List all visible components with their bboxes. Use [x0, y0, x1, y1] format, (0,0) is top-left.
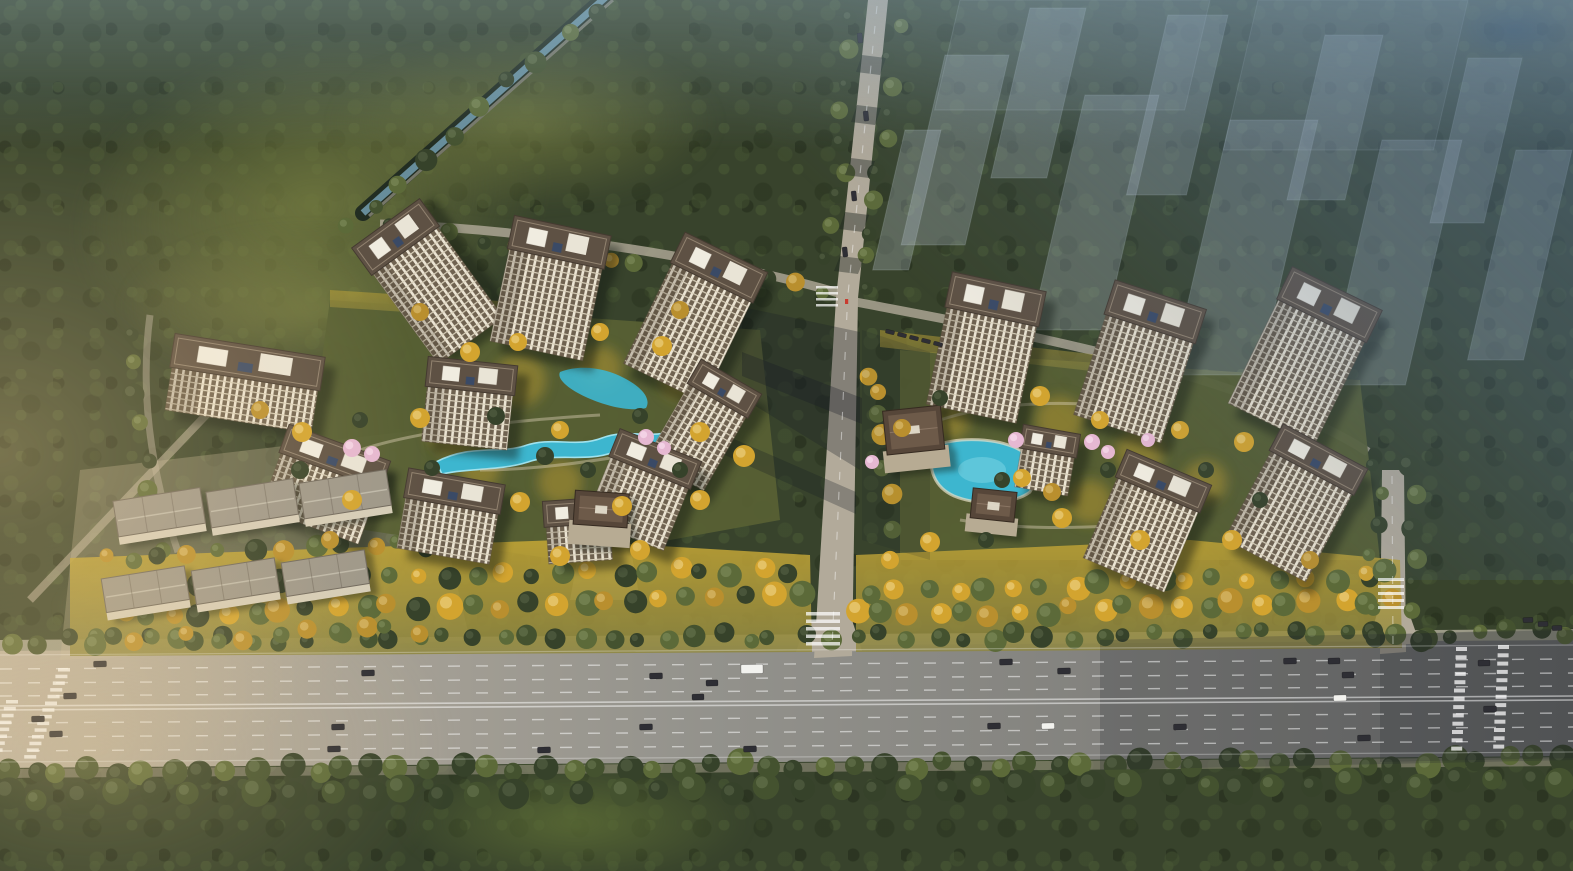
tree-highlight	[1205, 570, 1213, 578]
tree-highlight	[1256, 624, 1263, 631]
vehicle	[842, 247, 848, 257]
tree	[1522, 768, 1545, 791]
tower-building	[488, 215, 611, 361]
tree	[1341, 625, 1356, 640]
tree-highlight	[1122, 575, 1129, 582]
tree-highlight	[693, 565, 700, 572]
tree-highlight	[842, 42, 851, 51]
club-building	[965, 487, 1021, 536]
tree	[213, 568, 237, 592]
vehicle	[93, 661, 106, 667]
tower-building	[395, 468, 506, 565]
tree	[869, 600, 892, 623]
slab-building	[101, 566, 191, 621]
tree-highlight	[1404, 521, 1414, 531]
tree-highlight	[63, 631, 71, 639]
tree-highlight	[310, 574, 318, 582]
tree	[106, 763, 130, 787]
tree	[125, 632, 144, 651]
tree	[358, 595, 382, 619]
tree-highlight	[119, 605, 127, 613]
tree-highlight	[1054, 758, 1063, 767]
tree	[550, 546, 570, 566]
tree-highlight	[144, 455, 151, 462]
tree	[727, 748, 754, 775]
tree	[1091, 411, 1109, 429]
tree	[525, 51, 547, 73]
tree	[882, 51, 895, 64]
tree-highlight	[818, 759, 827, 768]
tree	[1404, 602, 1421, 619]
vehicle	[63, 693, 76, 699]
tree-highlight	[511, 335, 519, 343]
vehicle	[49, 731, 62, 737]
tree-highlight	[501, 632, 508, 639]
tree-highlight	[874, 427, 884, 437]
tree	[45, 763, 65, 783]
tree-highlight	[157, 544, 164, 551]
vehicle	[31, 716, 44, 722]
tree	[625, 254, 643, 272]
tree	[745, 634, 760, 649]
tree	[186, 604, 209, 627]
tree-highlight	[1237, 435, 1246, 444]
tree	[679, 773, 706, 800]
crosswalk-bar	[1497, 662, 1508, 666]
tree-highlight	[471, 569, 479, 577]
tree	[829, 187, 845, 203]
tree	[1120, 573, 1136, 589]
tree	[858, 247, 874, 263]
vehicle	[327, 746, 340, 752]
tree	[279, 781, 308, 810]
tree-highlight	[994, 761, 1002, 769]
tree	[869, 405, 887, 423]
vehicle	[361, 670, 374, 676]
tree-highlight	[236, 633, 245, 642]
tree-highlight	[674, 464, 681, 471]
tree	[717, 563, 741, 587]
tree	[753, 773, 780, 800]
crosswalk-bar	[58, 668, 70, 672]
tree	[516, 625, 537, 646]
tree	[510, 492, 530, 512]
tree-highlight	[979, 608, 989, 618]
tree	[411, 303, 429, 321]
tree-highlight	[384, 220, 390, 226]
vehicle	[741, 664, 763, 673]
crosswalk-bar	[806, 642, 840, 646]
tree-highlight	[639, 564, 648, 573]
tree	[100, 548, 114, 562]
tree-highlight	[243, 578, 250, 585]
tree-highlight	[31, 765, 40, 774]
tree-highlight	[323, 533, 331, 541]
tower-building	[622, 232, 768, 403]
tree-highlight	[1365, 624, 1374, 633]
tree	[1329, 750, 1352, 773]
vehicle	[1552, 625, 1562, 630]
tree-highlight	[1142, 597, 1153, 608]
tree-highlight	[627, 256, 635, 264]
tree-highlight	[882, 132, 890, 140]
tree	[162, 759, 188, 785]
tree-highlight	[30, 638, 39, 647]
gold-grass-patch	[1036, 396, 1084, 444]
accent-trees	[251, 301, 1319, 569]
tree	[167, 627, 189, 649]
tree	[328, 596, 348, 616]
tree	[612, 496, 632, 516]
tree	[870, 624, 887, 641]
tree-highlight	[867, 457, 873, 463]
tree	[956, 633, 970, 647]
tree	[142, 454, 157, 469]
tree-highlight	[1559, 629, 1567, 637]
tree	[122, 383, 144, 405]
tree	[166, 607, 183, 624]
tree-highlight	[1373, 518, 1381, 526]
tree	[321, 531, 339, 549]
tree-highlight	[366, 448, 373, 455]
tree-highlight	[276, 543, 286, 553]
tree	[672, 759, 696, 783]
tree-highlight	[1364, 550, 1370, 556]
tree	[1398, 455, 1420, 477]
tree-highlight	[125, 386, 135, 396]
tree-highlight	[1298, 571, 1306, 579]
tree	[933, 751, 952, 770]
crosswalk-bar	[1455, 664, 1466, 668]
vehicle	[692, 694, 704, 700]
crosswalk-bar	[1454, 697, 1465, 701]
tree-highlight	[874, 757, 886, 769]
tree	[1101, 445, 1115, 459]
tree-highlight	[1005, 624, 1015, 634]
tree	[187, 573, 211, 597]
tree-highlight	[1503, 748, 1512, 757]
tree-highlight	[545, 785, 555, 795]
tree-highlight	[1163, 773, 1175, 785]
tree-highlight	[436, 629, 442, 635]
tree	[414, 631, 429, 646]
tree-highlight	[746, 636, 753, 643]
tree	[1146, 624, 1162, 640]
tree	[322, 780, 345, 803]
tree-highlight	[1015, 754, 1026, 765]
tree	[1410, 630, 1432, 652]
tree	[931, 603, 952, 624]
tree	[437, 593, 464, 620]
tree-highlight	[144, 630, 151, 637]
crosswalk-bar	[32, 735, 44, 739]
tree-highlight	[794, 779, 805, 790]
tree	[789, 581, 815, 607]
tree	[452, 753, 476, 777]
tree-highlight	[954, 585, 962, 593]
crosswalk-bar	[0, 721, 11, 725]
tree-highlight	[284, 756, 295, 767]
tree-highlight	[48, 766, 57, 775]
tree-highlight	[1107, 757, 1117, 767]
tree-highlight	[547, 631, 556, 640]
tree	[137, 609, 154, 626]
tree	[493, 562, 513, 582]
tree-highlight	[275, 629, 282, 636]
crosswalk-bar	[53, 681, 65, 685]
side-road-southwest	[30, 392, 228, 600]
tree	[615, 564, 638, 587]
tree	[445, 127, 464, 146]
west-courtyard-pond	[436, 430, 690, 474]
tree	[504, 763, 522, 781]
tree-highlight	[1290, 624, 1298, 632]
tree	[524, 569, 539, 584]
tree	[251, 401, 269, 419]
tree-highlight	[597, 594, 605, 602]
tree-highlight	[1088, 572, 1099, 583]
tree-highlight	[760, 272, 768, 280]
crosswalk-bar	[1451, 747, 1462, 751]
tree	[863, 779, 886, 802]
tree-highlight	[212, 545, 218, 551]
tree	[733, 445, 755, 467]
tree	[920, 532, 940, 552]
tree	[308, 572, 325, 589]
west-courtyard-pool	[559, 368, 647, 410]
tree-highlight	[627, 593, 637, 603]
tower-building	[1223, 424, 1368, 583]
tree-highlight	[849, 602, 860, 613]
ghost-tower	[1430, 58, 1522, 223]
tree-highlight	[331, 625, 340, 634]
tree-highlight	[391, 537, 397, 543]
tree	[964, 756, 982, 774]
tree-highlight	[1117, 630, 1123, 636]
tree	[883, 77, 902, 96]
tree-highlight	[1093, 413, 1101, 421]
crosswalk-bar	[1378, 592, 1404, 595]
tree-highlight	[340, 220, 347, 227]
tree	[534, 755, 559, 780]
tree	[424, 460, 440, 476]
tree-highlight	[883, 109, 890, 116]
tree-highlight	[1174, 599, 1184, 609]
club-building	[879, 405, 951, 474]
tree	[0, 777, 25, 809]
tree-highlight	[1485, 772, 1494, 781]
crosswalk-bar	[0, 748, 3, 752]
tree-highlight	[673, 303, 681, 311]
tree	[1051, 756, 1071, 776]
tree	[1012, 751, 1036, 775]
tree-highlight	[724, 785, 734, 795]
vehicle	[706, 680, 718, 686]
tree	[359, 781, 389, 811]
crosswalk-bar	[1496, 678, 1507, 682]
tree	[0, 758, 20, 781]
tree-highlight	[1406, 604, 1413, 611]
tree-highlight	[293, 463, 301, 471]
tree-highlight	[168, 609, 176, 617]
tree	[342, 490, 362, 510]
tree	[1401, 518, 1422, 539]
tree-highlight	[128, 356, 135, 363]
tree-highlight	[593, 325, 601, 333]
tree-highlight	[1173, 423, 1181, 431]
tree	[1336, 589, 1358, 611]
tree	[402, 219, 418, 235]
scene-artwork	[0, 0, 1573, 871]
tree-highlight	[1304, 778, 1314, 788]
tree-highlight	[152, 519, 159, 526]
tree	[61, 628, 78, 645]
tree-highlight	[179, 785, 189, 795]
tree	[219, 604, 239, 624]
tree	[297, 620, 316, 639]
tree	[836, 163, 855, 182]
tree	[291, 461, 309, 479]
tree	[1549, 745, 1573, 772]
tree	[1181, 756, 1203, 778]
tree	[691, 564, 707, 580]
tree-highlight	[466, 597, 475, 606]
tree	[971, 578, 995, 602]
tree-highlight	[678, 589, 687, 598]
tree	[1223, 775, 1253, 805]
tree-highlight	[1222, 750, 1233, 761]
tree-highlight	[686, 628, 696, 638]
vehicle	[999, 659, 1012, 665]
crosswalk-bar	[806, 620, 840, 624]
tree-highlight	[793, 584, 805, 596]
tree-highlight	[1039, 606, 1050, 617]
tree	[378, 630, 398, 650]
tree-highlight	[1409, 487, 1418, 496]
tree-highlight	[884, 486, 893, 495]
tree-highlight	[282, 785, 295, 798]
tree-highlight	[0, 761, 10, 772]
tree-highlight	[495, 565, 504, 574]
tree-highlight	[606, 255, 613, 262]
crosswalk-bar	[1495, 711, 1506, 715]
tree-highlight	[1033, 629, 1043, 639]
tower-building	[924, 272, 1046, 424]
tree-highlight	[1535, 622, 1544, 631]
tree-highlight	[363, 785, 377, 799]
tree-highlight	[1499, 621, 1508, 630]
roads	[0, 0, 1573, 778]
tree	[535, 237, 555, 257]
tree	[334, 626, 352, 644]
tree	[798, 625, 816, 643]
tree-highlight	[413, 305, 421, 313]
vehicle	[1523, 617, 1533, 622]
tree	[1361, 569, 1379, 587]
tree-highlight	[466, 631, 474, 639]
crosswalks	[0, 286, 1509, 759]
grass-clearing-northwest	[41, 0, 579, 416]
vehicle	[1342, 672, 1354, 678]
tree-highlight	[862, 284, 868, 290]
tree-highlight	[935, 754, 943, 762]
tree	[333, 569, 353, 589]
tree	[1296, 569, 1314, 587]
tree-highlight	[271, 572, 282, 583]
tree-highlight	[1200, 464, 1207, 471]
tree	[273, 627, 289, 643]
tree	[1522, 745, 1543, 766]
crosswalk-bar	[0, 728, 9, 732]
tree	[630, 633, 644, 647]
tree-highlight	[525, 571, 532, 578]
tree-highlight	[780, 566, 789, 575]
tree-highlight	[440, 596, 452, 608]
tree	[575, 590, 601, 616]
tree	[822, 217, 839, 234]
tree	[144, 629, 159, 644]
tree-highlight	[222, 607, 231, 616]
vehicle	[863, 111, 869, 121]
tree	[360, 630, 378, 648]
tree-highlight	[591, 6, 599, 14]
tree-highlight	[885, 80, 894, 89]
tree-highlight	[268, 600, 279, 611]
tree-highlight	[1385, 591, 1394, 600]
tree-highlight	[537, 758, 548, 769]
tree-highlight	[730, 752, 742, 764]
tree	[862, 227, 877, 242]
tree-highlight	[1143, 435, 1149, 441]
tree	[1077, 771, 1105, 799]
sunlight-glow-southwest	[0, 0, 1573, 871]
tree	[832, 780, 852, 800]
tree-highlight	[299, 601, 306, 608]
tree	[672, 462, 688, 478]
tree	[478, 236, 491, 249]
tree	[671, 557, 693, 579]
tree	[410, 408, 430, 428]
tree-highlight	[720, 566, 731, 577]
tree	[952, 583, 970, 601]
tree	[1373, 559, 1397, 583]
tree	[411, 625, 429, 643]
tree-highlight	[1227, 779, 1240, 792]
ghost-tower	[1468, 150, 1572, 360]
crosswalk-bar	[1378, 578, 1404, 581]
tree-highlight	[869, 166, 877, 174]
tree	[636, 562, 657, 583]
west-cluster-side-road	[146, 315, 178, 552]
tower-building	[1072, 280, 1207, 444]
tree	[1176, 572, 1193, 589]
tree-highlight	[391, 178, 399, 186]
tree-highlight	[675, 762, 686, 773]
gold-grass-patch	[578, 346, 622, 390]
vehicle	[1283, 658, 1296, 664]
gold-grass-patch	[618, 448, 662, 492]
entrance-marker	[845, 299, 848, 304]
tree	[331, 536, 349, 554]
tree	[1005, 580, 1022, 597]
tree	[1269, 753, 1290, 774]
tree-highlight	[448, 129, 456, 137]
tree	[1066, 631, 1084, 649]
tree-highlight	[860, 249, 867, 256]
tree	[1301, 776, 1322, 797]
tree-highlight	[1357, 595, 1367, 605]
tree-highlight	[1238, 625, 1245, 632]
